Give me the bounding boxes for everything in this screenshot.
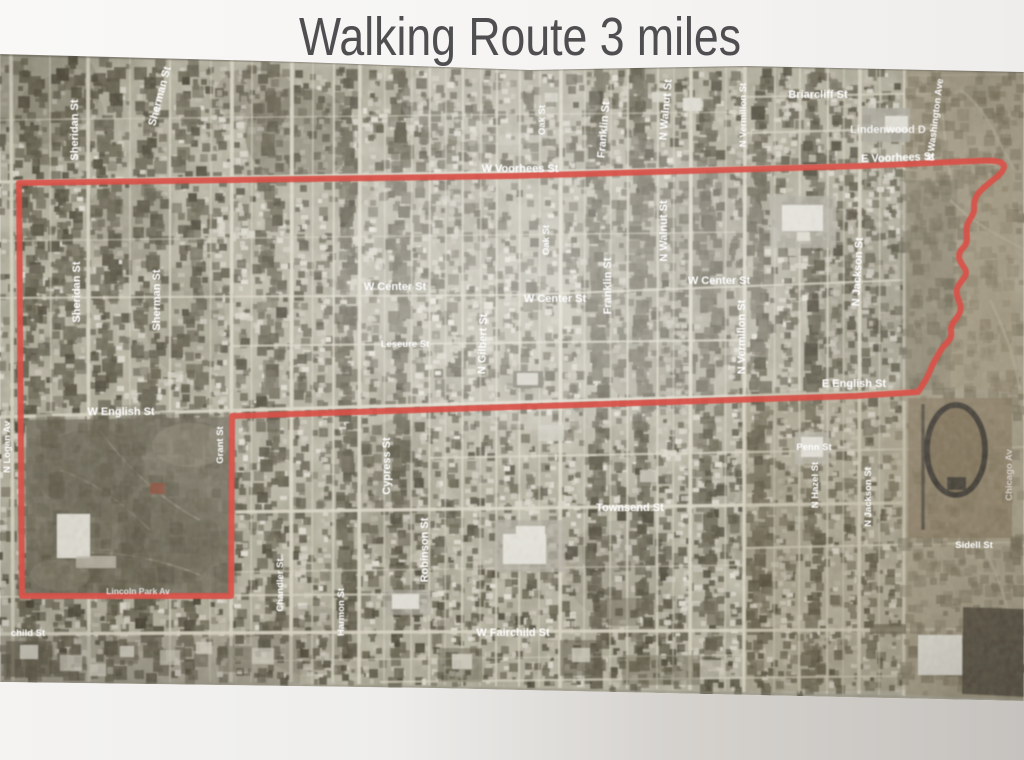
svg-text:N Hazel St: N Hazel St xyxy=(810,461,821,508)
svg-text:Penn St: Penn St xyxy=(796,442,832,453)
svg-text:Lincoln Park Av: Lincoln Park Av xyxy=(106,586,170,596)
svg-text:Chandler St: Chandler St xyxy=(275,558,286,612)
svg-text:N Jackson St: N Jackson St xyxy=(863,466,874,526)
svg-text:N Gilbert St: N Gilbert St xyxy=(476,313,490,374)
svg-text:Leseure St: Leseure St xyxy=(381,339,430,350)
svg-text:W Center St: W Center St xyxy=(524,293,587,305)
svg-text:W Fairchild St: W Fairchild St xyxy=(476,627,550,639)
svg-text:N Vermilion St: N Vermilion St xyxy=(738,82,749,147)
svg-text:W Center St: W Center St xyxy=(688,275,751,287)
svg-text:Grant St: Grant St xyxy=(215,425,226,463)
svg-text:Robinson St: Robinson St xyxy=(419,517,431,582)
svg-text:Sheridan St: Sheridan St xyxy=(71,261,83,322)
svg-text:Sidell St: Sidell St xyxy=(955,540,993,551)
svg-text:Oak St: Oak St xyxy=(537,104,548,135)
svg-text:Cypress St: Cypress St xyxy=(381,437,393,495)
svg-text:Lindenwood D: Lindenwood D xyxy=(850,124,926,136)
svg-text:child St: child St xyxy=(11,628,46,639)
svg-text:Sherman St: Sherman St xyxy=(151,269,163,330)
svg-text:Townsend St: Townsend St xyxy=(596,502,664,514)
svg-text:W English St: W English St xyxy=(87,406,155,418)
svg-text:Walking Route 3 miles: Walking Route 3 miles xyxy=(299,7,741,67)
svg-text:Briarcliff St: Briarcliff St xyxy=(788,89,848,101)
svg-text:Oak St: Oak St xyxy=(541,224,552,255)
svg-text:W Voorhees St: W Voorhees St xyxy=(482,163,559,175)
svg-text:N Logan Av: N Logan Av xyxy=(2,420,13,473)
svg-text:N Walnut St: N Walnut St xyxy=(658,200,670,262)
svg-text:E English St: E English St xyxy=(822,378,887,390)
svg-text:N Vermilion St: N Vermilion St xyxy=(736,299,748,374)
svg-text:Sheridan St: Sheridan St xyxy=(69,99,81,160)
svg-text:Harmon St: Harmon St xyxy=(336,587,347,636)
svg-text:Franklin St: Franklin St xyxy=(602,257,614,314)
svg-text:W Center St: W Center St xyxy=(364,281,427,293)
svg-text:Chicago Av: Chicago Av xyxy=(1004,449,1015,501)
